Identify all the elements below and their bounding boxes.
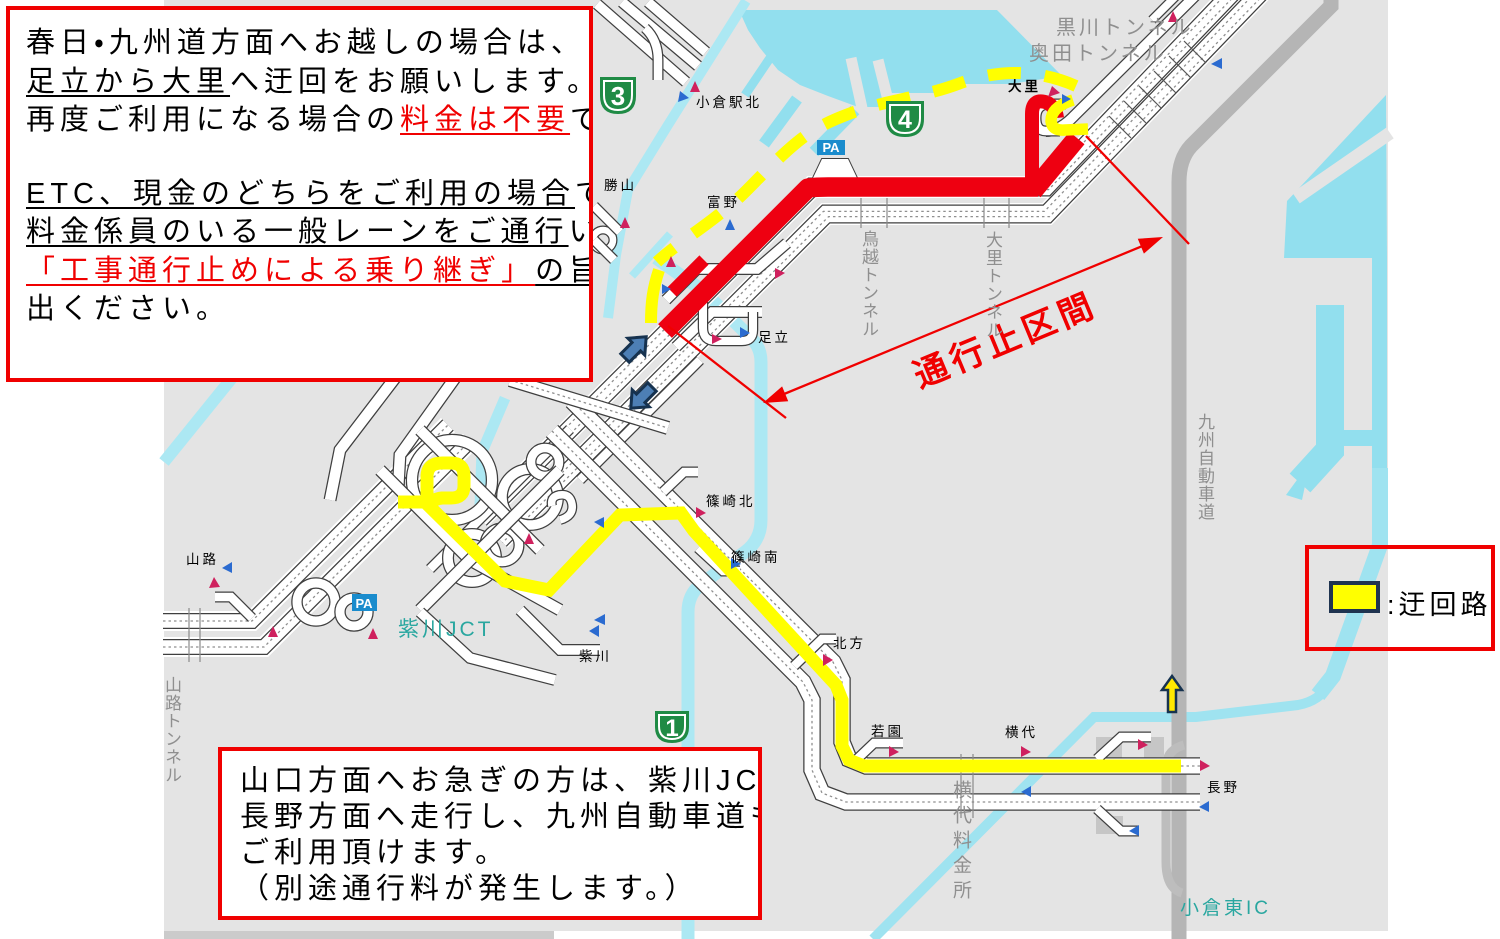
svg-text:PA: PA [355, 596, 373, 611]
svg-text:3: 3 [611, 81, 625, 111]
svg-text:4: 4 [898, 106, 912, 134]
svg-text:1: 1 [665, 715, 678, 742]
svg-text:PA: PA [822, 140, 840, 155]
